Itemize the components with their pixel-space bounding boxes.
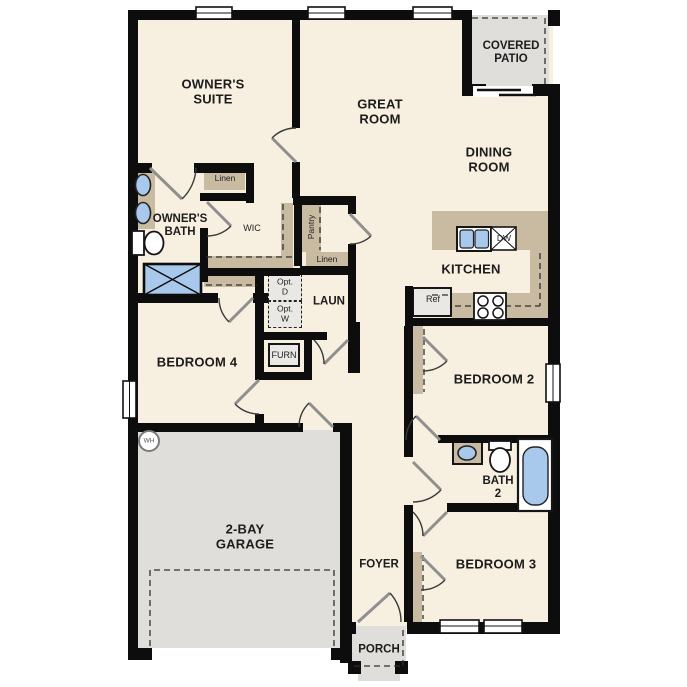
opt-washer-label: Opt. W — [277, 304, 293, 323]
garage-door-dashed — [150, 570, 334, 646]
bedroom3-door-leaf — [423, 512, 447, 536]
covered-patio-label: COVERED PATIO — [483, 40, 540, 66]
door-arc — [413, 490, 441, 502]
wic-label: WIC — [243, 223, 261, 233]
garage-door-leaf — [309, 403, 333, 427]
wic-rod-dashed — [206, 204, 292, 285]
tub-icon — [518, 439, 552, 511]
stove-icon — [474, 293, 506, 320]
bath2-label: BATH 2 — [482, 475, 513, 501]
garage-label: 2-BAY GARAGE — [216, 522, 274, 551]
bedroom2-label: BEDROOM 2 — [454, 373, 535, 388]
door-arc — [350, 236, 371, 244]
linen2-label: Linen — [317, 255, 338, 265]
door-arc — [406, 416, 416, 440]
dining-room-label: DINING ROOM — [466, 145, 513, 174]
bath-sink-icon — [136, 203, 151, 224]
linen1-label: Linen — [215, 174, 236, 184]
bedroom2-door-leaf — [416, 416, 440, 440]
bedroom2-closet-door-leaf — [423, 337, 447, 361]
toilet-tank-icon — [132, 231, 144, 255]
owners-bath-label: OWNER'S BATH — [153, 213, 208, 239]
refrigerator-label: Ref — [426, 294, 440, 304]
owners-suite-door-leaf — [272, 138, 296, 162]
opt-dryer-label: Opt. D — [277, 277, 293, 296]
door-arc — [235, 404, 259, 414]
bedroom4-label: BEDROOM 4 — [157, 356, 238, 371]
great-room-label: GREAT ROOM — [357, 97, 403, 126]
bath2-toilet-icon — [489, 441, 511, 472]
door-arc — [413, 512, 423, 536]
plan-linework — [0, 0, 687, 687]
wic-door-leaf — [207, 202, 231, 226]
water-heater-label: WH — [144, 437, 155, 444]
door-arc — [272, 128, 296, 138]
door-arc — [423, 361, 447, 371]
kitchen-sink-icon — [457, 227, 491, 251]
door-arc — [299, 403, 309, 427]
dishwasher-label: DW — [497, 234, 511, 244]
patio-slider — [473, 86, 536, 97]
bath2-sink-icon — [458, 446, 476, 460]
bath-sink-icon — [136, 175, 151, 196]
door-arc — [219, 298, 229, 322]
kitchen-label: KITCHEN — [441, 263, 500, 278]
door-swings — [150, 128, 447, 622]
owners-bath-door-leaf — [150, 168, 182, 199]
owners-suite-label: OWNER'S SUITE — [182, 77, 245, 106]
laundry-door-leaf — [324, 340, 348, 364]
bath2-door-leaf — [413, 462, 441, 490]
door-arc — [390, 593, 401, 622]
bedroom3-label: BEDROOM 3 — [456, 558, 537, 573]
door-arc — [182, 168, 196, 199]
door-arc — [421, 580, 445, 590]
bedroom4-door-leaf — [235, 380, 259, 404]
door-arc — [207, 226, 231, 236]
pantry-label: Pantry — [307, 215, 317, 240]
bedroom3-closet-door-leaf — [421, 556, 445, 580]
furnace-label: FURN — [272, 350, 297, 360]
pantry-door-leaf — [350, 214, 371, 236]
laundry-label: LAUN — [313, 296, 345, 309]
entry-door-leaf — [358, 593, 390, 622]
porch-label: PORCH — [358, 644, 400, 657]
floor-plan: OWNER'S SUITE GREAT ROOM COVERED PATIO D… — [0, 0, 687, 687]
door-arc — [314, 340, 324, 364]
hall-door-leaf — [229, 298, 253, 322]
shower-icon — [144, 264, 201, 295]
foyer-label: FOYER — [359, 559, 399, 572]
